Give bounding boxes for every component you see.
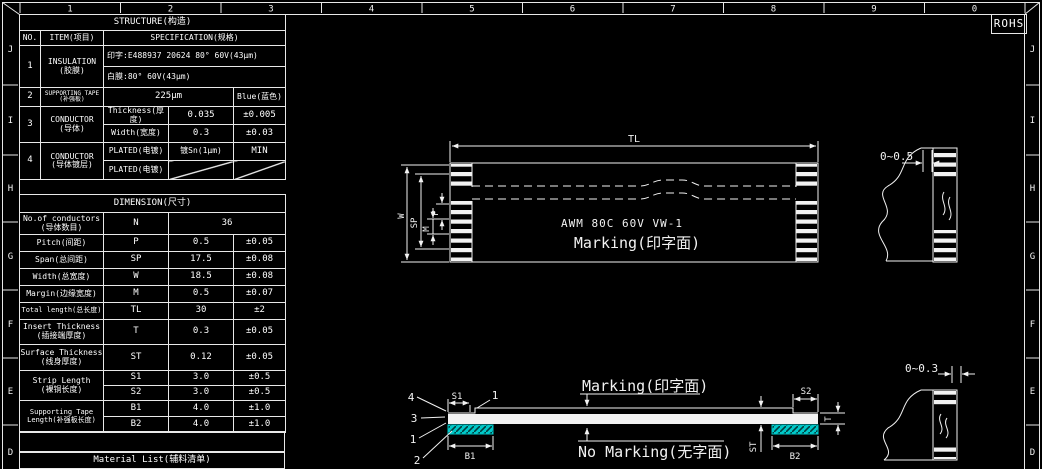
conductor-stripes-right-upper	[796, 164, 817, 187]
surface-thickness-value: 0.12	[169, 345, 234, 371]
s1-dim-label: S1	[452, 392, 463, 402]
awm-marking-text: AWM 80C 60V VW-1	[561, 217, 683, 230]
plating-na-cell-1	[169, 161, 234, 180]
insert-thickness-value: 0.3	[169, 320, 234, 345]
row-conductor-no: 3	[20, 107, 41, 143]
sp-dim-label: SP	[410, 217, 420, 228]
plating-tol: MIN	[234, 143, 286, 161]
width-label: Width(总宽度)	[20, 269, 104, 286]
margin-label: Margin(边缘宽度)	[20, 286, 104, 303]
pitch-symbol: P	[104, 235, 169, 252]
supporting-tape-left	[448, 425, 493, 434]
row-tape-item: SUPPORTING TAPE (补强板)	[41, 88, 104, 107]
conductor-stripes-left-lower	[451, 201, 472, 261]
zone-letter-left: H	[8, 184, 13, 194]
row-plating-item: CONDUCTOR (导体镀层)	[41, 143, 104, 180]
plating-value: 镀Sn(1μm)	[169, 143, 234, 161]
callout-3: 3	[411, 412, 418, 425]
col-header-spec: SPECIFICATION(规格)	[104, 31, 286, 46]
zone-number: 2	[168, 5, 173, 15]
b1-dim-label: B1	[465, 452, 476, 462]
end-detail-bottom: 0~0.3	[883, 362, 975, 460]
col-header-item: ITEM(项目)	[41, 31, 104, 46]
cable-side-view: 4 3 1 2 1 S1 S2 Marking(印字面) No Marking(…	[408, 377, 845, 467]
rohs-stamp: ROHS	[991, 14, 1027, 34]
conductor-thickness-tol: ±0.005	[234, 107, 286, 125]
b1-tol: ±1.0	[234, 401, 286, 417]
zone-letter-right: F	[1030, 320, 1035, 330]
conductor-thickness-value: 0.035	[169, 107, 234, 125]
st-dim-label: ST	[749, 441, 759, 452]
row-conductor-item: CONDUCTOR (导体)	[41, 107, 104, 143]
col-header-no: NO.	[20, 31, 41, 46]
row-insulation-no: 1	[20, 46, 41, 88]
row-plating-no: 4	[20, 143, 41, 180]
break-wave-edge	[879, 148, 921, 261]
end-strip-dim-top: 0~0.5	[880, 150, 913, 163]
conductor-stripes-left-upper	[451, 164, 472, 187]
total-length-label: Total length(总长度)	[20, 303, 104, 320]
span-tol: ±0.08	[234, 252, 286, 269]
conductor-width-tol: ±0.03	[234, 125, 286, 143]
t-dim-label: T	[824, 416, 834, 422]
structure-table-title: STRUCTURE(构造)	[20, 15, 286, 31]
insulation-item-cn: (胶膜)	[41, 67, 103, 76]
inner-break-marks	[943, 192, 951, 220]
total-length-value: 30	[169, 303, 234, 320]
tl-dim-label: TL	[628, 134, 640, 145]
cable-top-view: TL W SP	[397, 134, 818, 262]
insert-thickness-label: Insert Thickness (插接端厚度)	[20, 320, 104, 345]
pitch-label: Pitch(间距)	[20, 235, 104, 252]
zone-number: 1	[67, 5, 72, 15]
zone-number: 3	[268, 5, 273, 15]
s2-dim-label: S2	[801, 387, 812, 397]
zone-number: 0	[972, 5, 977, 15]
zone-letter-right: G	[1030, 252, 1035, 262]
callout-4: 4	[408, 391, 415, 404]
break-wave-edge-bottom	[883, 390, 921, 460]
dimension-table-title: DIMENSION(尺寸)	[20, 195, 286, 213]
insert-thickness-symbol: T	[104, 320, 169, 345]
span-symbol: SP	[104, 252, 169, 269]
conductors-symbol: N	[104, 213, 169, 235]
cable-body-side-view	[448, 414, 818, 424]
b1-symbol: B1	[104, 401, 169, 417]
plating-label-2: PLATED(电镀)	[104, 161, 169, 180]
row-insulation-item: INSULATION (胶膜)	[41, 46, 104, 88]
zone-number: 9	[871, 5, 876, 15]
zone-letter-left: F	[8, 320, 13, 330]
surface-thickness-label-cn: (线身厚度)	[20, 358, 103, 367]
zone-letter-left: G	[8, 252, 13, 262]
conductors-value: 36	[169, 213, 286, 235]
rohs-label: ROHS	[994, 17, 1025, 30]
zone-number: 5	[469, 5, 474, 15]
span-value: 17.5	[169, 252, 234, 269]
margin-tol: ±0.07	[234, 286, 286, 303]
zone-letter-right: E	[1030, 387, 1035, 397]
zone-number: 7	[670, 5, 675, 15]
zone-letter-left: J	[8, 45, 13, 55]
conductor-stripes-right-lower	[796, 201, 817, 261]
conductor-item-cn: (导体)	[41, 125, 103, 134]
zone-letter-left: D	[8, 448, 13, 458]
pitch-tol: ±0.05	[234, 235, 286, 252]
zone-number: 6	[570, 5, 575, 15]
zone-number: 8	[771, 5, 776, 15]
tape-color-value: Blue(蓝色)	[234, 88, 286, 107]
inner-break-marks-bottom	[940, 414, 948, 438]
surface-thickness-label: Surface Thickness (线身厚度)	[20, 345, 104, 371]
plating-label-1: PLATED(电镀)	[104, 143, 169, 161]
zone-letter-right: H	[1030, 184, 1035, 194]
end-strip-dim-bottom: 0~0.3	[905, 362, 938, 375]
dim-row-conductors-label: No.of conductors (导体数目)	[20, 213, 104, 235]
surface-thickness-tol: ±0.05	[234, 345, 286, 371]
conductors-label-cn: (导体数目)	[20, 224, 103, 233]
supporting-tape-right	[772, 425, 818, 434]
pitch-value: 0.5	[169, 235, 234, 252]
conductor-thickness-label: Thickness(厚度)	[104, 107, 169, 125]
insert-thickness-label-cn: (插接端厚度)	[20, 332, 103, 341]
material-list-title: Material List(辅料清单)	[93, 455, 210, 465]
structure-table: STRUCTURE(构造) NO. ITEM(项目) SPECIFICATION…	[19, 14, 286, 180]
s1-symbol: S1	[104, 371, 169, 386]
margin-value: 0.5	[169, 286, 234, 303]
marking-face-label-side-view: Marking(印字面)	[582, 377, 708, 395]
width-symbol: W	[104, 269, 169, 286]
material-list-header: Material List(辅料清单)	[19, 452, 285, 469]
width-tol: ±0.08	[234, 269, 286, 286]
frame-corner-diagonals	[3, 3, 1040, 15]
callout-1-top: 1	[492, 389, 499, 402]
no-marking-face-label: No Marking(无字面)	[578, 443, 731, 461]
m-dim-label: M	[422, 226, 432, 232]
tape-item-cn: (补强板)	[41, 97, 103, 103]
zone-letter-left: I	[8, 116, 13, 126]
zone-letter-right: I	[1030, 116, 1035, 126]
callout-1: 1	[410, 433, 417, 446]
s2-symbol: S2	[104, 386, 169, 401]
conductor-width-label: Width(宽度)	[104, 125, 169, 143]
tape-length-label: Supporting Tape Length(补强板长度)	[20, 401, 104, 433]
cad-drawing-canvas: 1234567890JJIIHHGGFFEEDD TL	[0, 0, 1042, 469]
empty-table-section	[19, 431, 285, 452]
insulation-spec-white: 白膜:80° 60V(43μm)	[104, 67, 286, 88]
s2-tol: ±0.5	[234, 386, 286, 401]
dimension-table: DIMENSION(尺寸) No.of conductors (导体数目) N …	[19, 194, 286, 433]
w-dim-label: W	[397, 213, 407, 219]
strip-length-label-cn: (裸铜长度)	[20, 386, 103, 395]
margin-symbol: M	[104, 286, 169, 303]
callout-2: 2	[414, 454, 421, 467]
plating-na-cell-2	[234, 161, 286, 180]
tape-thickness-value: 225μm	[104, 88, 234, 107]
dashed-break-line-lower	[472, 193, 796, 199]
surface-thickness-symbol: ST	[104, 345, 169, 371]
b2-dim-label: B2	[790, 452, 801, 462]
end-detail-top: 0~0.5	[879, 148, 957, 262]
dashed-break-line-upper	[472, 180, 796, 186]
tape-length-label-cn: Length(补强板长度)	[20, 417, 103, 425]
marking-face-label-top-view: Marking(印字面)	[574, 234, 700, 252]
b1-value: 4.0	[169, 401, 234, 417]
zone-letter-left: E	[8, 387, 13, 397]
p-dim-label: P	[431, 210, 441, 216]
zone-letter-right: D	[1030, 448, 1035, 458]
total-length-tol: ±2	[234, 303, 286, 320]
zone-number: 4	[369, 5, 374, 15]
plating-item-cn: (导体镀层)	[41, 161, 103, 170]
strip-length-label: Strip Length (裸铜长度)	[20, 371, 104, 401]
insert-thickness-tol: ±0.05	[234, 320, 286, 345]
conductor-width-value: 0.3	[169, 125, 234, 143]
s2-value: 3.0	[169, 386, 234, 401]
s1-tol: ±0.5	[234, 371, 286, 386]
width-value: 18.5	[169, 269, 234, 286]
insulation-step-line	[448, 408, 818, 413]
span-label: Span(总间距)	[20, 252, 104, 269]
zone-letter-right: J	[1030, 45, 1035, 55]
insulation-spec-print: 印字:E488937 20624 80° 60V(43μm)	[104, 46, 286, 67]
s1-value: 3.0	[169, 371, 234, 386]
row-tape-no: 2	[20, 88, 41, 107]
total-length-symbol: TL	[104, 303, 169, 320]
